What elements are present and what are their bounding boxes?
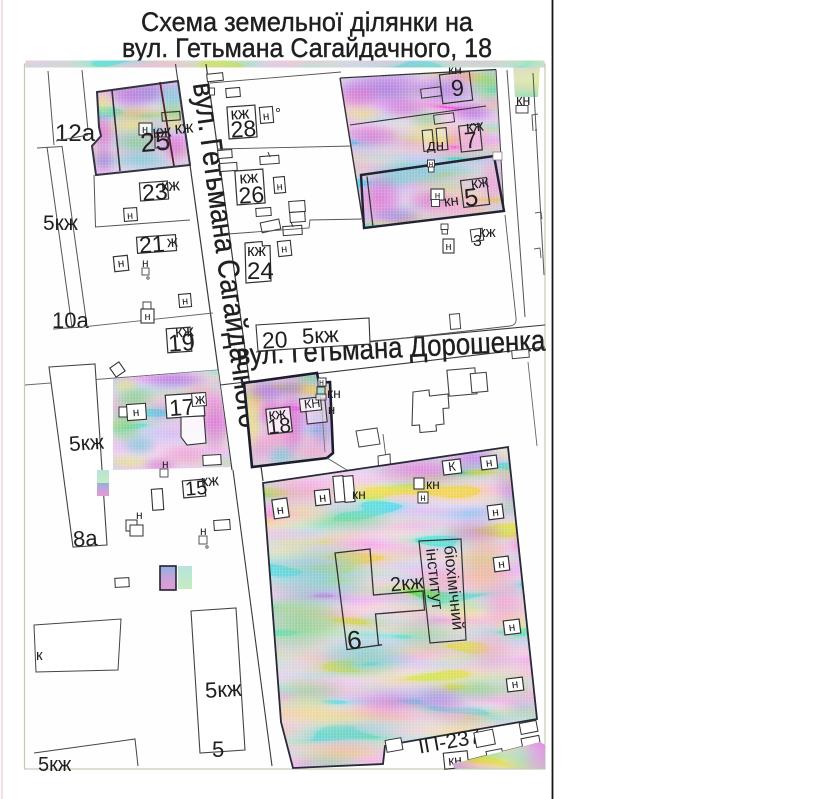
- svg-text:н: н: [328, 402, 335, 417]
- svg-text:кж: кж: [470, 174, 490, 193]
- svg-text:н: н: [420, 493, 426, 504]
- svg-text:н: н: [445, 241, 451, 253]
- svg-text:5: 5: [212, 737, 224, 762]
- svg-text:н: н: [144, 311, 150, 323]
- svg-text:кж: кж: [174, 321, 195, 341]
- svg-text:кн: кн: [426, 476, 440, 492]
- svg-text:ж: ж: [194, 391, 205, 409]
- svg-text:кж: кж: [465, 118, 485, 137]
- svg-text:5кж: 5кж: [38, 754, 72, 776]
- svg-text:кн: кн: [443, 192, 460, 211]
- svg-text:н: н: [276, 181, 283, 193]
- svg-text:н: н: [281, 243, 288, 256]
- svg-text:к: к: [36, 647, 43, 664]
- svg-text:н: н: [182, 295, 189, 307]
- svg-text:24: 24: [247, 258, 274, 285]
- svg-text:10а: 10а: [52, 308, 89, 333]
- svg-text:кн: кн: [327, 385, 341, 401]
- svg-text:кж: кж: [160, 175, 181, 195]
- svg-text:н: н: [127, 210, 134, 222]
- svg-text:18: 18: [267, 414, 293, 439]
- svg-text:21: 21: [138, 230, 165, 258]
- svg-text:5кж: 5кж: [301, 322, 339, 349]
- svg-text:8а: 8а: [72, 525, 99, 551]
- svg-text:5кж: 5кж: [68, 431, 104, 456]
- svg-text:ж: ж: [166, 234, 178, 252]
- svg-text:28: 28: [230, 115, 257, 143]
- svg-text:н: н: [262, 109, 270, 124]
- svg-text:н: н: [132, 405, 140, 419]
- svg-text:кж: кж: [479, 224, 496, 241]
- svg-text:вул. Гетьмана Сагайдачного, 18: вул. Гетьмана Сагайдачного, 18: [122, 33, 492, 63]
- svg-text:кж: кж: [200, 472, 219, 491]
- svg-text:5кж: 5кж: [204, 676, 242, 703]
- svg-text:2кж: 2кж: [389, 571, 425, 596]
- svg-text:5кж: 5кж: [43, 212, 78, 235]
- svg-text:12а: 12а: [55, 120, 96, 147]
- svg-text:н: н: [319, 377, 324, 387]
- svg-text:26: 26: [238, 181, 265, 209]
- svg-text:дн: дн: [427, 137, 444, 154]
- svg-text:кн: кн: [352, 486, 366, 502]
- svg-text:20: 20: [261, 326, 288, 353]
- svg-text:н: н: [429, 160, 433, 169]
